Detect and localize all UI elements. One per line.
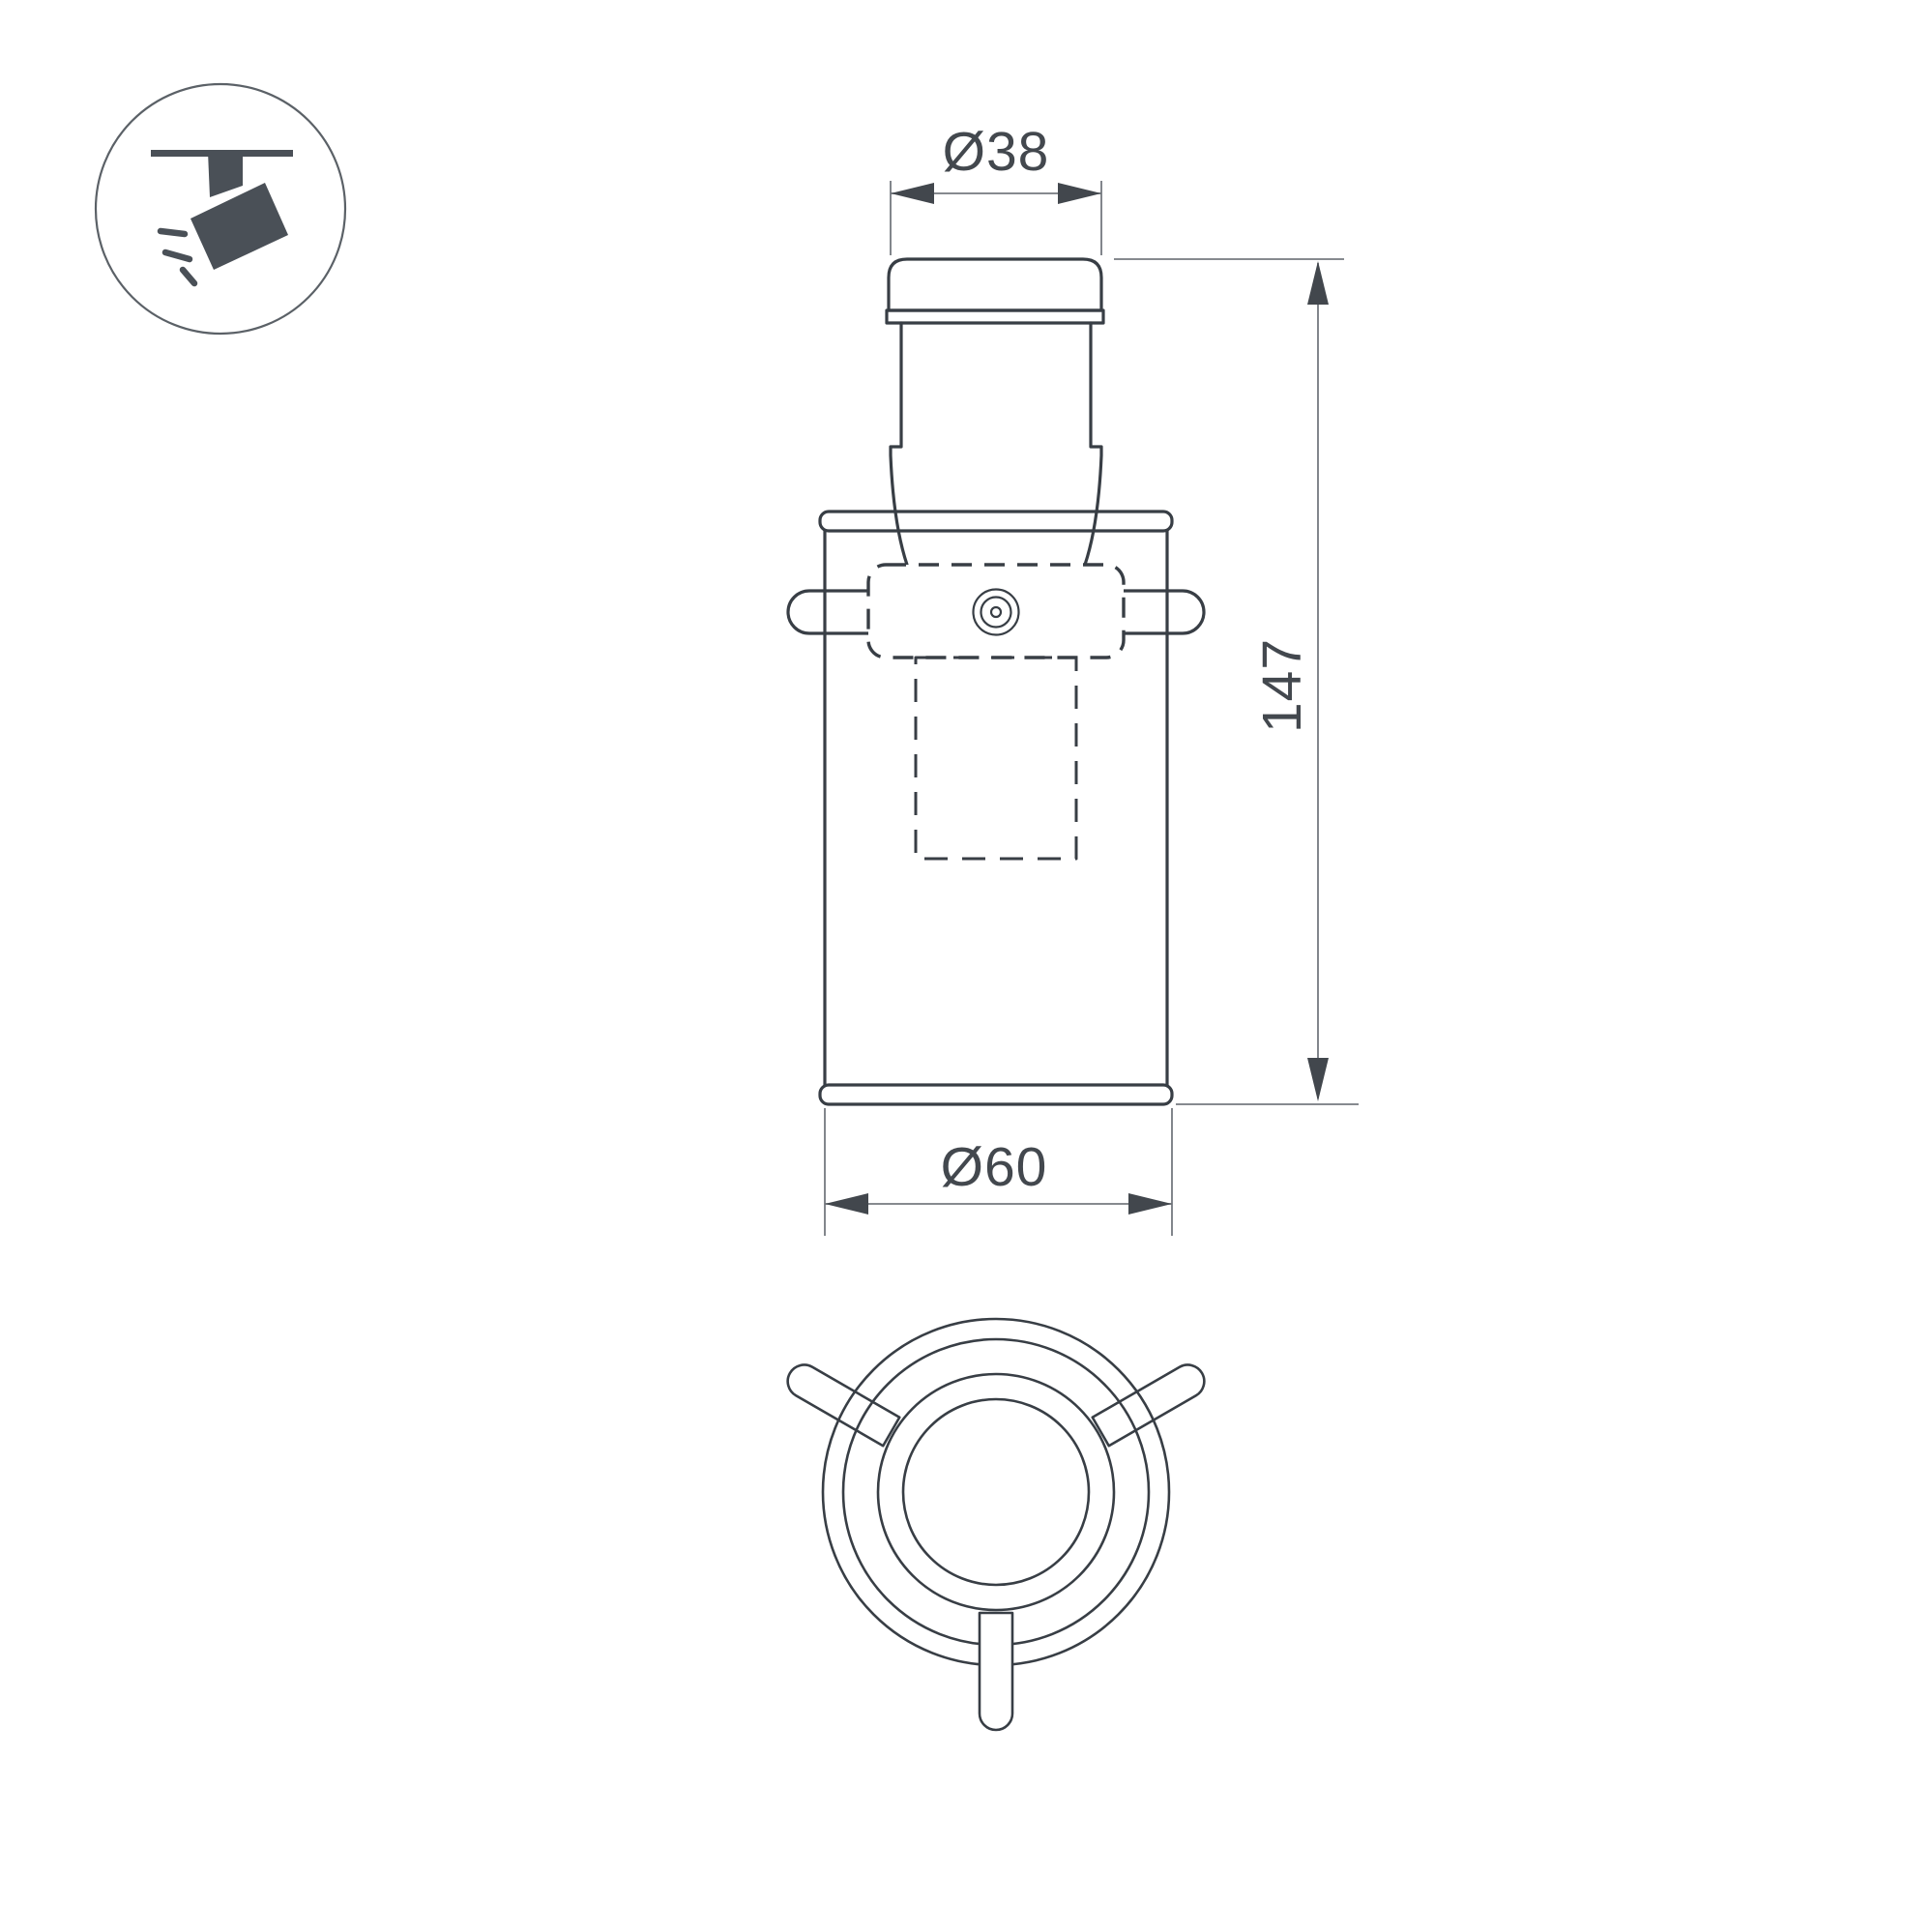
- drawing-canvas: Ø38 147 Ø60: [0, 0, 1932, 1932]
- front-view: [788, 259, 1204, 1104]
- hidden-internal-module: [916, 658, 1076, 859]
- inner-ring: [903, 1399, 1089, 1585]
- third-ring: [878, 1374, 1114, 1610]
- icon-mount-stem: [208, 152, 243, 197]
- second-ring: [843, 1339, 1149, 1645]
- dimension-top-diameter: Ø38: [891, 121, 1101, 255]
- top-diameter-label: Ø38: [943, 121, 1050, 183]
- neck-right-edge: [1085, 323, 1101, 565]
- height-label: 147: [1251, 638, 1313, 733]
- dimension-height: 147: [1114, 259, 1359, 1104]
- right-pin: [1124, 591, 1204, 633]
- technical-drawing: Ø38 147 Ø60: [0, 0, 1932, 1932]
- bottom-view-pin-upper-left: [781, 1359, 899, 1446]
- neck-left-edge: [891, 323, 907, 565]
- cap-band: [887, 310, 1103, 323]
- dimension-bottom-diameter: Ø60: [825, 1108, 1172, 1236]
- bottom-view-pin-upper-right: [1093, 1359, 1211, 1446]
- arrow-up: [1307, 261, 1329, 305]
- body-top-flange: [820, 512, 1172, 531]
- left-pin: [788, 591, 868, 633]
- body-bottom-flange: [820, 1085, 1172, 1104]
- bottom-view-pin-down: [980, 1613, 1012, 1730]
- track-spotlight-icon: [96, 84, 345, 334]
- icon-spotlight-body: [190, 183, 288, 270]
- top-cap: [889, 259, 1101, 310]
- arrow-right: [1058, 183, 1101, 204]
- arrow-left: [825, 1193, 868, 1215]
- arrow-right: [1128, 1193, 1172, 1215]
- bottom-view: [781, 1319, 1210, 1730]
- icon-light-rays: [161, 231, 194, 283]
- hidden-adjuster-block: [868, 565, 1124, 658]
- arrow-left: [891, 183, 934, 204]
- arrow-down: [1307, 1058, 1329, 1101]
- bottom-diameter-label: Ø60: [941, 1136, 1048, 1198]
